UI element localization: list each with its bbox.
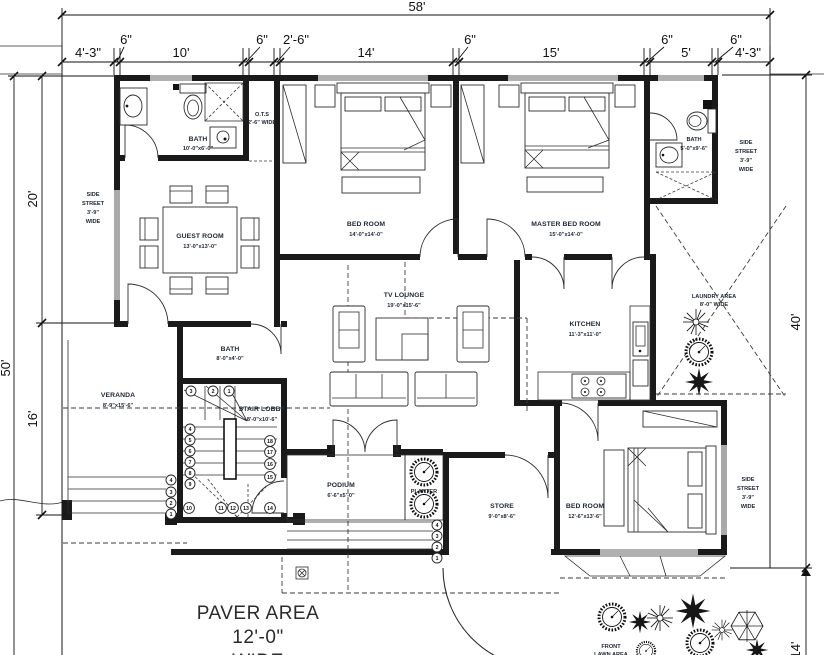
door-store [505, 455, 548, 498]
room-bedroom-top-name: BED ROOM [347, 221, 385, 228]
plant-icon [683, 309, 709, 335]
room-ots-name: O.T.S [255, 112, 269, 118]
step-number: 16 [267, 462, 273, 468]
step-number: 11 [218, 506, 224, 512]
room-bedroom-bottom-size: 12'-6"x13'-6" [568, 514, 602, 520]
dim-seg-6: 6" [464, 32, 476, 47]
furniture-tv-lounge [330, 306, 489, 406]
room-ots-size: 2'-6" WIDE [248, 120, 276, 126]
room-tv-size: 19'-0"x15'-6" [387, 303, 421, 309]
street-left-3: 3'-9" [87, 210, 99, 216]
street-right-top-4: WIDE [739, 167, 754, 173]
room-veranda-size: 8'-9"x15'-6" [103, 403, 134, 409]
fixtures-bath-top [120, 83, 243, 148]
door-kitchen-1 [532, 257, 564, 289]
plant-icon [686, 339, 712, 365]
step-number: 13 [243, 506, 249, 512]
step-number: 1 [170, 512, 173, 518]
door-guest [128, 284, 168, 324]
dim-right-main: 40' [788, 314, 803, 331]
plant-icon [712, 620, 733, 641]
furniture-bed-bottom [604, 411, 717, 534]
window-bedroom-bottom [600, 549, 698, 555]
door-bath-top [125, 125, 158, 158]
dim-seg-0: 4'-3" [75, 45, 101, 60]
paver-line-1: PAVER AREA [197, 603, 320, 624]
entrance [443, 556, 725, 655]
podium-block: 4 3 2 1 [287, 455, 443, 579]
dim-seg-1: 6" [120, 32, 132, 47]
dim-seg-7: 15' [543, 45, 560, 60]
room-stair-lobby-size: 8'-0"x10'-6" [247, 417, 278, 423]
step-number: 5 [189, 438, 192, 444]
street-right-top-1: SIDE [739, 140, 752, 146]
furniture-bed-top [283, 83, 451, 193]
window-bedroom-top [318, 75, 428, 81]
step-number: 3 [190, 389, 193, 395]
window-master [508, 75, 618, 81]
street-right-bottom-1: SIDE [741, 477, 754, 483]
door-kitchen-2 [612, 257, 644, 289]
step-number: 6 [189, 449, 192, 455]
street-right-bottom-3: 3'-9" [742, 495, 754, 501]
step-number: 4 [170, 478, 173, 484]
dim-top-total: 58' [409, 0, 426, 14]
dim-left-lower: 16' [25, 411, 40, 428]
window-bath-right [658, 75, 704, 81]
area-labels: PAVER AREA 12'-0" WIDE FRONT LAWN AREA [197, 603, 628, 655]
step-number: 9 [189, 482, 192, 488]
step-number: 4 [436, 523, 439, 529]
room-bath-mid-size: 8'-0"x4'-0" [216, 356, 244, 362]
step-number: 12 [230, 506, 236, 512]
window-guest-left [114, 190, 120, 300]
veranda-steps: 4 3 2 1 [68, 340, 176, 519]
step-number: 10 [186, 506, 192, 512]
plant-icon [647, 605, 673, 631]
door-bedroom-top [420, 219, 458, 257]
room-master-name: MASTER BED ROOM [531, 221, 601, 228]
street-left-1: SIDE [86, 192, 99, 198]
step-number: 14 [267, 506, 273, 512]
plant-icon [746, 639, 768, 655]
room-stair-lobby-name: STAIR LOBBY [239, 406, 286, 413]
street-right-top-2: STREET [735, 149, 758, 155]
paver-line-2: 12'-0" [232, 627, 283, 648]
plant-icon [599, 604, 625, 630]
room-bath-top-size: 10'-0"x6'-0" [183, 146, 214, 152]
step-number: 2 [170, 501, 173, 507]
dim-left-total: 50' [0, 360, 13, 377]
room-store-size: 9'-0"x8'-6" [488, 514, 516, 520]
furniture-dining-set [140, 186, 259, 294]
plant-icon [676, 594, 711, 629]
step-number: 8 [189, 471, 192, 477]
window-bath-top [150, 75, 192, 81]
plants-planter [411, 459, 437, 517]
door-master [487, 219, 525, 257]
step-number: 2 [436, 545, 439, 551]
lawn-line-1: FRONT [601, 644, 621, 650]
furniture-bed-master [461, 83, 635, 192]
dim-seg-11: 4'-3" [735, 45, 761, 60]
step-number: 3 [436, 534, 439, 540]
room-tv-name: TV LOUNGE [384, 292, 425, 299]
room-bath-right-name: BATH [686, 137, 701, 143]
room-bath-top-name: BATH [189, 136, 208, 143]
room-guest-name: GUEST ROOM [176, 233, 224, 240]
room-kitchen-size: 11'-3"x11'-0" [569, 332, 602, 338]
street-right-bottom-4: WIDE [741, 504, 756, 510]
room-laundry-size: 8'-0" WIDE [700, 302, 728, 308]
door-bath-mid [251, 324, 281, 354]
floor-plan-canvas: 58' 4'-3" 6" 10' 6" 2'-6" 14' 6 [0, 0, 824, 655]
dim-seg-4: 2'-6" [283, 32, 309, 47]
room-bedroom-bottom-name: BED ROOM [566, 503, 604, 510]
step-number: 7 [189, 460, 192, 466]
plant-icon [411, 459, 437, 485]
plant-icon [687, 630, 713, 655]
room-master-size: 15'-0"x14'-0" [549, 232, 583, 238]
street-left-2: STREET [82, 201, 105, 207]
plant-icon [685, 368, 713, 396]
door-double-podium [333, 420, 397, 452]
entrance-arc [443, 568, 543, 655]
plants-laundry [683, 309, 713, 396]
dim-seg-2: 10' [173, 45, 190, 60]
plant-icon [629, 611, 651, 633]
step-number: 1 [228, 389, 231, 395]
dim-left-upper: 20' [25, 191, 40, 208]
door-bath-right [650, 113, 677, 140]
room-bath-right-size: 5'-0"x9'-6" [680, 146, 708, 152]
dim-seg-3: 6" [256, 32, 268, 47]
street-left-4: WIDE [86, 219, 101, 225]
stair-treads [183, 386, 277, 479]
room-planter-name: PLANTER [411, 489, 437, 495]
break-line [0, 499, 63, 504]
paver-line-3: WIDE [232, 651, 284, 655]
room-guest-size: 13'-0"x13'-0" [183, 244, 217, 250]
room-podium-size: 6'-6"x5'-0" [327, 493, 355, 499]
dim-seg-8: 6" [661, 32, 673, 47]
porch-steps [565, 556, 725, 576]
floor-plan-drawing: 58' 4'-3" 6" 10' 6" 2'-6" 14' 6 [0, 0, 824, 655]
x-marker [296, 567, 308, 579]
room-podium-name: PODIUM [327, 482, 355, 489]
step-number: 2 [212, 389, 215, 395]
dim-seg-5: 14' [358, 45, 375, 60]
step-number: 17 [267, 450, 273, 456]
street-right-bottom-2: STREET [737, 486, 760, 492]
step-number: 15 [267, 475, 273, 481]
room-laundry-name: LAUNDRY AREA [692, 294, 736, 300]
plants-front-lawn [599, 594, 768, 655]
door-bedroom-bottom [560, 403, 598, 441]
room-bath-mid-name: BATH [221, 346, 240, 353]
step-number: 4 [189, 427, 192, 433]
room-kitchen-name: KITCHEN [570, 321, 601, 328]
step-number: 18 [267, 439, 273, 445]
window-bedroom-right [721, 445, 727, 535]
dim-leaders [117, 47, 733, 62]
dim-seg-9: 5' [681, 45, 691, 60]
plant-icon [637, 642, 655, 655]
street-right-top-3: 3'-9" [740, 158, 752, 164]
dim-right-lower: 14' [788, 642, 803, 655]
room-veranda-name: VERANDA [101, 392, 135, 399]
step-number: 1 [436, 556, 439, 562]
step-number: 3 [170, 490, 173, 496]
plant-icon [731, 610, 763, 642]
room-bedroom-top-size: 14'-0"x14'-0" [349, 232, 383, 238]
room-store-name: STORE [490, 503, 514, 510]
